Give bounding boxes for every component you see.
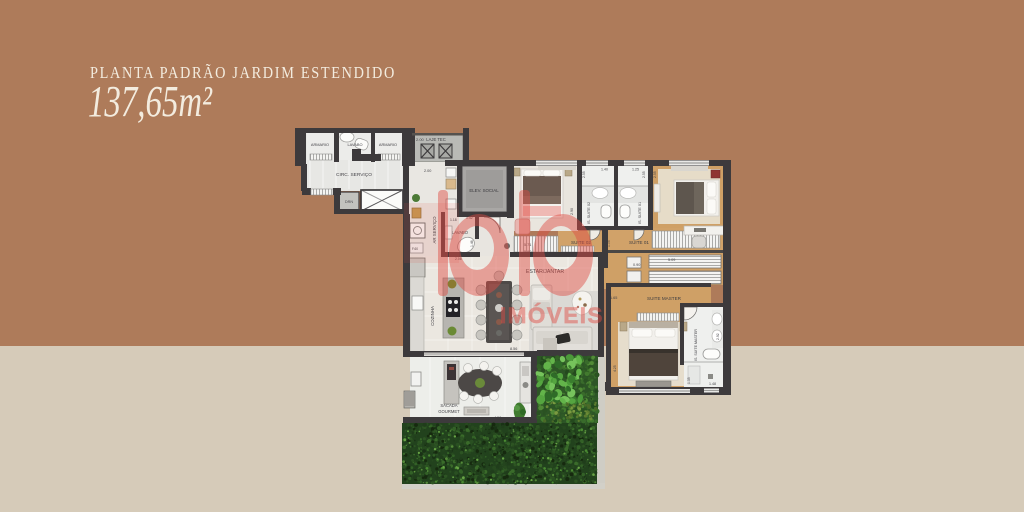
svg-text:1.65: 1.65 — [610, 296, 617, 300]
svg-text:8.56: 8.56 — [510, 347, 517, 351]
svg-text:1.35: 1.35 — [687, 377, 691, 384]
svg-text:4.25: 4.25 — [613, 365, 617, 372]
svg-text:1.46: 1.46 — [470, 240, 474, 247]
svg-text:ARMARIO: ARMARIO — [311, 142, 329, 147]
svg-text:ARMARIO: ARMARIO — [379, 142, 397, 147]
svg-text:DRN: DRN — [345, 200, 353, 204]
svg-text:IS. SUITE MASTER: IS. SUITE MASTER — [694, 329, 698, 361]
svg-text:1.48: 1.48 — [709, 382, 716, 386]
svg-text:1.25: 1.25 — [632, 168, 639, 172]
svg-text:1.40: 1.40 — [601, 168, 608, 172]
svg-text:137,65m²: 137,65m² — [88, 77, 213, 126]
svg-text:GOURMET: GOURMET — [438, 409, 460, 414]
svg-text:SUITE MASTER: SUITE MASTER — [647, 296, 682, 301]
svg-text:0.90: 0.90 — [633, 263, 640, 267]
svg-text:LAVABO: LAVABO — [348, 142, 363, 147]
svg-text:IMÓVEIS: IMÓVEIS — [500, 303, 604, 328]
svg-text:IS. SUITE 02: IS. SUITE 02 — [587, 202, 591, 224]
svg-text:CIRC. SERVIÇO: CIRC. SERVIÇO — [336, 172, 372, 178]
svg-text:SUITE 01: SUITE 01 — [629, 240, 649, 245]
svg-text:2.90: 2.90 — [570, 208, 574, 215]
svg-text:2.00: 2.00 — [416, 137, 425, 142]
svg-text:COZINHA: COZINHA — [430, 306, 435, 326]
svg-text:2.92: 2.92 — [716, 333, 720, 340]
svg-text:2.55: 2.55 — [642, 171, 646, 178]
svg-text:2.55: 2.55 — [653, 171, 657, 178]
svg-text:LAJE TEC: LAJE TEC — [426, 137, 445, 142]
svg-text:SACADA: SACADA — [440, 403, 457, 408]
svg-text:IS. SUITE 01: IS. SUITE 01 — [638, 202, 642, 224]
svg-text:ELEV. SOCIAL: ELEV. SOCIAL — [469, 188, 499, 193]
svg-text:2.55: 2.55 — [582, 171, 586, 178]
svg-text:5.09: 5.09 — [668, 258, 675, 262]
svg-text:2.00: 2.00 — [424, 169, 431, 173]
